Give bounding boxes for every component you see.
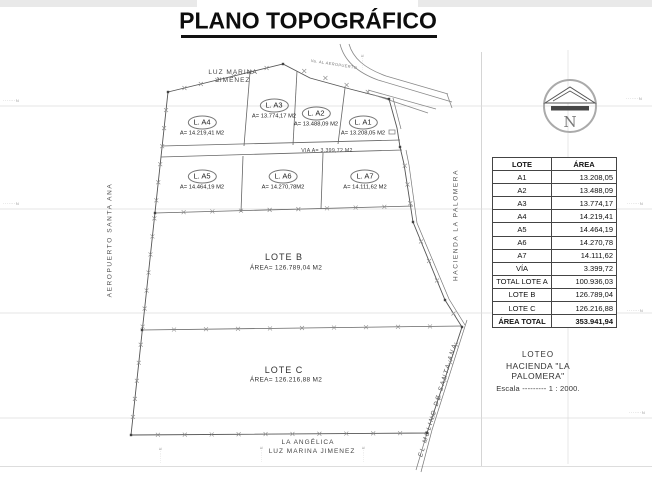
north-compass: N	[544, 80, 596, 132]
cell-lote: A6	[493, 236, 552, 249]
neighbor-top: LUZ MARINA JIMENEZ	[208, 69, 257, 85]
col-header-lote: LOTE	[493, 158, 552, 171]
lot-b-area: ÁREA= 126.789,04 M2	[250, 265, 322, 272]
neighbor-bottom-line1: LA ANGÉLICA	[282, 439, 335, 447]
cell-lote: LOTE B	[493, 288, 552, 301]
grid-label-top-1: ·······E	[360, 54, 365, 70]
neighbor-top-line1: LUZ MARINA	[208, 69, 257, 77]
cell-area: 126.789,04	[552, 288, 617, 301]
title-block-hacienda: HACIENDA "LA PALOMERA"	[480, 361, 596, 381]
lot-area: A= 14.464,19 M2	[180, 185, 224, 191]
cell-area: 14.270,78	[552, 236, 617, 249]
grid-label-bottom-3: ·······E	[361, 446, 366, 462]
plan-sheet: PLANO TOPOGRÁFICO	[0, 0, 652, 480]
lot-name: L. A4	[187, 116, 216, 130]
area-table-total-row: ÁREA TOTAL353.941,94	[493, 315, 617, 328]
lot-name: L. A1	[348, 116, 377, 130]
cell-area: 13.208,05	[552, 171, 617, 184]
cell-area: 100.936,03	[552, 275, 617, 288]
neighbor-top-line2: JIMENEZ	[208, 77, 257, 85]
lot-label-a7: L. A7A= 14.111,62 M2	[343, 166, 386, 191]
lot-area: A= 13.208,05 M2	[341, 131, 385, 137]
area-table-row: VÍA3.399,72	[493, 262, 617, 275]
grid-label-bottom-1: ·······E	[158, 447, 163, 463]
grid-label-bottom-2: ·······E	[259, 446, 264, 462]
via-area-label: VIA A= 3.399,72 M2	[301, 148, 352, 154]
area-table-row: A313.774,17	[493, 197, 617, 210]
lot-area: A= 14.219,41 M2	[180, 131, 224, 137]
cell-lote: A3	[493, 197, 552, 210]
via-road-lines	[161, 140, 402, 157]
grid-label-left-2: ·······N	[3, 201, 19, 206]
cell-area: 13.774,17	[552, 197, 617, 210]
area-table-row: A213.488,09	[493, 184, 617, 197]
cell-lote: A5	[493, 223, 552, 236]
cell-area: 13.488,09	[552, 184, 617, 197]
area-table: LOTE ÁREA A113.208,05A213.488,09A313.774…	[492, 157, 617, 328]
area-table-row: A514.464,19	[493, 223, 617, 236]
cell-area: 14.111,62	[552, 249, 617, 262]
survey-marker	[389, 130, 395, 134]
lot-name: L. A7	[350, 170, 379, 184]
cell-lote: A1	[493, 171, 552, 184]
curved-road	[340, 44, 452, 113]
cell-lote: VÍA	[493, 262, 552, 275]
area-table-row: A614.270,78	[493, 236, 617, 249]
lot-area: A= 14.270,78M2	[262, 185, 305, 191]
lot-c-name: LOTE C	[265, 365, 304, 375]
cell-lote: LOTE C	[493, 302, 552, 315]
cell-area: 3.399,72	[552, 262, 617, 275]
area-table-row: LOTE B126.789,04	[493, 288, 617, 301]
cell-lote: A7	[493, 249, 552, 262]
area-table-body: A113.208,05A213.488,09A313.774,17A414.21…	[493, 171, 617, 328]
cell-area: 126.216,88	[552, 302, 617, 315]
title-block: LOTEO HACIENDA "LA PALOMERA" Escala ----…	[480, 350, 596, 393]
neighbor-bottom-line2: LUZ MARINA JIMENEZ	[269, 448, 356, 456]
neighbor-left-aeropuerto: AEROPUERTO SANTA ANA	[107, 183, 114, 298]
lot-name: L. A6	[268, 170, 297, 184]
lot-label-a6: L. A6A= 14.270,78M2	[262, 166, 305, 191]
grid-label-right-3: ·······N	[627, 308, 643, 313]
area-table-row: A714.111,62	[493, 249, 617, 262]
area-table-header-row: LOTE ÁREA	[493, 158, 617, 171]
lot-name: L. A3	[259, 99, 288, 113]
lot-area: A= 13.488,09 M2	[294, 122, 338, 128]
lot-area: A= 13.774,17 M2	[252, 114, 296, 120]
grid-label-left-1: ·······N	[3, 98, 19, 103]
col-header-area: ÁREA	[552, 158, 617, 171]
title-block-loteo: LOTEO	[480, 350, 596, 359]
cell-area: 14.464,19	[552, 223, 617, 236]
lot-area: A= 14.111,62 M2	[343, 185, 386, 191]
neighbor-right-hacienda: HACIENDA LA PALOMERA	[453, 169, 460, 281]
lot-name: L. A2	[301, 107, 330, 121]
lot-label-a3: L. A3A= 13.774,17 M2	[252, 95, 296, 120]
area-table-row: A113.208,05	[493, 171, 617, 184]
cell-area: 353.941,94	[552, 315, 617, 328]
lot-label-a4: L. A4A= 14.219,41 M2	[180, 112, 224, 137]
lot-name: L. A5	[187, 170, 216, 184]
area-table-row: TOTAL LOTE A100.936,03	[493, 275, 617, 288]
cell-lote: TOTAL LOTE A	[493, 275, 552, 288]
lot-b-name: LOTE B	[265, 252, 303, 262]
compass-north-letter: N	[563, 113, 576, 131]
area-table-row: A414.219,41	[493, 210, 617, 223]
cell-area: 14.219,41	[552, 210, 617, 223]
cell-lote: A4	[493, 210, 552, 223]
lot-c-area: ÁREA= 126.216,88 M2	[250, 377, 322, 384]
title-block-scale: Escala --------- 1 : 2000.	[480, 384, 596, 393]
lot-label-a1: L. A1A= 13.208,05 M2	[341, 112, 385, 137]
grid-label-right-4: ·······N	[629, 410, 645, 415]
grid-label-right-1: ·······N	[626, 96, 642, 101]
lot-label-a5: L. A5A= 14.464,19 M2	[180, 166, 224, 191]
grid-label-right-2: ·······N	[627, 201, 643, 206]
lot-label-a2: L. A2A= 13.488,09 M2	[294, 103, 338, 128]
area-table-row: LOTE C126.216,88	[493, 302, 617, 315]
cell-lote: A2	[493, 184, 552, 197]
cell-lote: ÁREA TOTAL	[493, 315, 552, 328]
